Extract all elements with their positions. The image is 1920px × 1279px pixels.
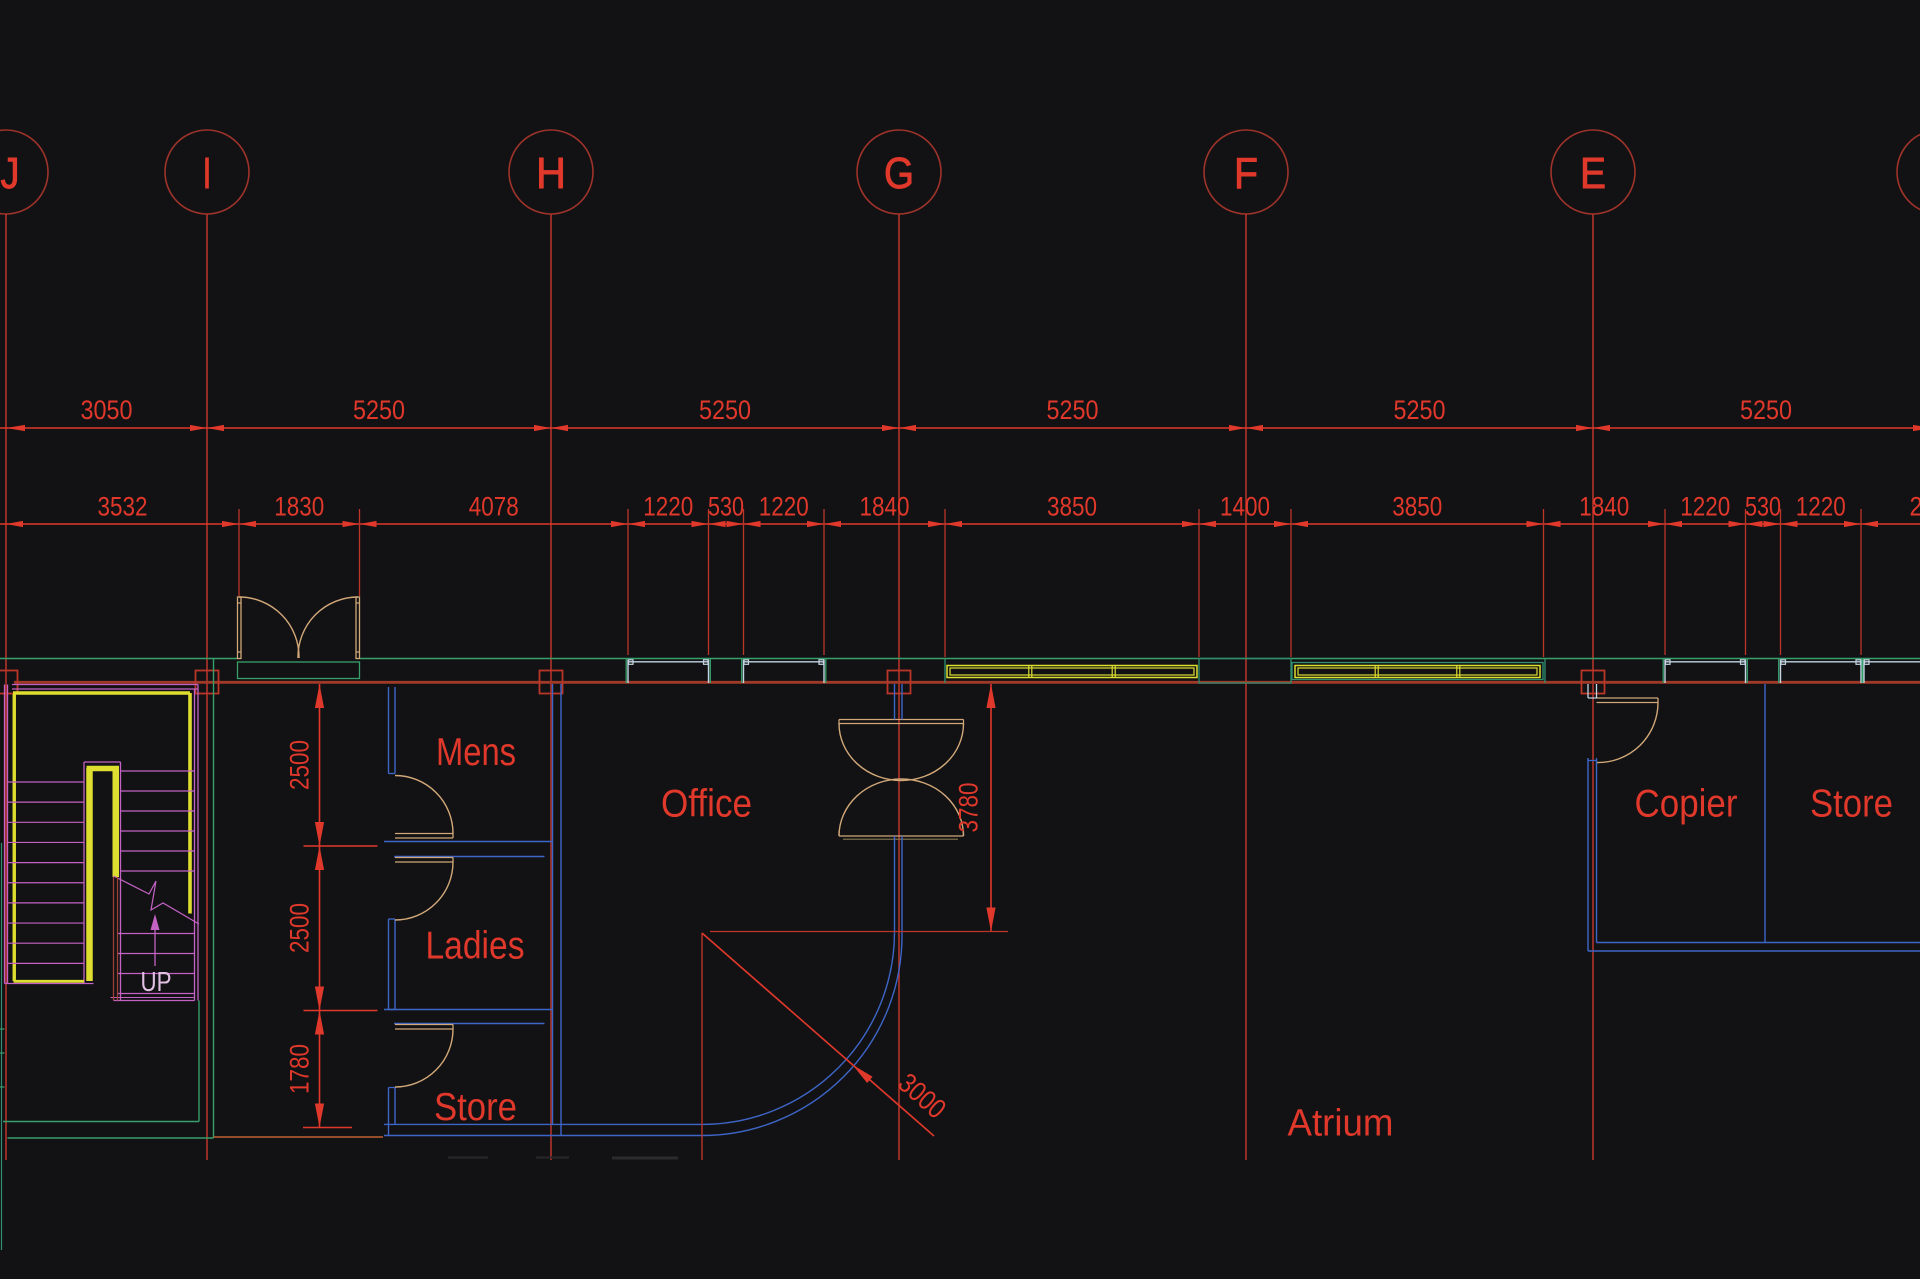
svg-text:1220: 1220 — [759, 492, 809, 522]
svg-text:I: I — [203, 149, 212, 198]
svg-text:2500: 2500 — [285, 903, 315, 953]
svg-text:1220: 1220 — [1680, 492, 1730, 522]
svg-text:Store: Store — [434, 1086, 517, 1129]
svg-text:J: J — [1, 149, 20, 198]
svg-text:5250: 5250 — [1047, 395, 1099, 425]
svg-text:1220: 1220 — [643, 492, 693, 522]
svg-text:Office: Office — [661, 783, 752, 826]
svg-text:1840: 1840 — [1579, 492, 1629, 522]
svg-text:Atrium: Atrium — [1288, 1103, 1394, 1145]
svg-text:F: F — [1234, 149, 1258, 198]
svg-text:5250: 5250 — [1394, 395, 1446, 425]
svg-text:1780: 1780 — [285, 1044, 315, 1094]
svg-text:530: 530 — [1745, 492, 1781, 522]
svg-text:3850: 3850 — [1047, 492, 1097, 522]
svg-text:2500: 2500 — [285, 740, 315, 790]
svg-text:Copier: Copier — [1635, 783, 1738, 826]
svg-text:5250: 5250 — [1740, 395, 1792, 425]
svg-text:H: H — [536, 149, 566, 198]
svg-text:3532: 3532 — [98, 492, 148, 522]
svg-text:5250: 5250 — [353, 395, 405, 425]
svg-text:Mens: Mens — [436, 731, 516, 774]
svg-text:Store: Store — [1810, 783, 1893, 826]
svg-text:4078: 4078 — [469, 492, 519, 522]
svg-text:3050: 3050 — [81, 395, 133, 425]
svg-text:1830: 1830 — [274, 492, 324, 522]
svg-text:3780: 3780 — [954, 783, 984, 833]
svg-text:G: G — [884, 149, 914, 198]
svg-text:1400: 1400 — [1220, 492, 1270, 522]
svg-text:UP: UP — [141, 966, 172, 997]
svg-text:E: E — [1580, 149, 1606, 198]
svg-text:5250: 5250 — [699, 395, 751, 425]
svg-text:530: 530 — [708, 492, 744, 522]
svg-text:2: 2 — [1910, 492, 1920, 522]
svg-text:1220: 1220 — [1796, 492, 1846, 522]
svg-text:3850: 3850 — [1392, 492, 1442, 522]
svg-text:Ladies: Ladies — [426, 925, 525, 968]
svg-text:1840: 1840 — [860, 492, 910, 522]
